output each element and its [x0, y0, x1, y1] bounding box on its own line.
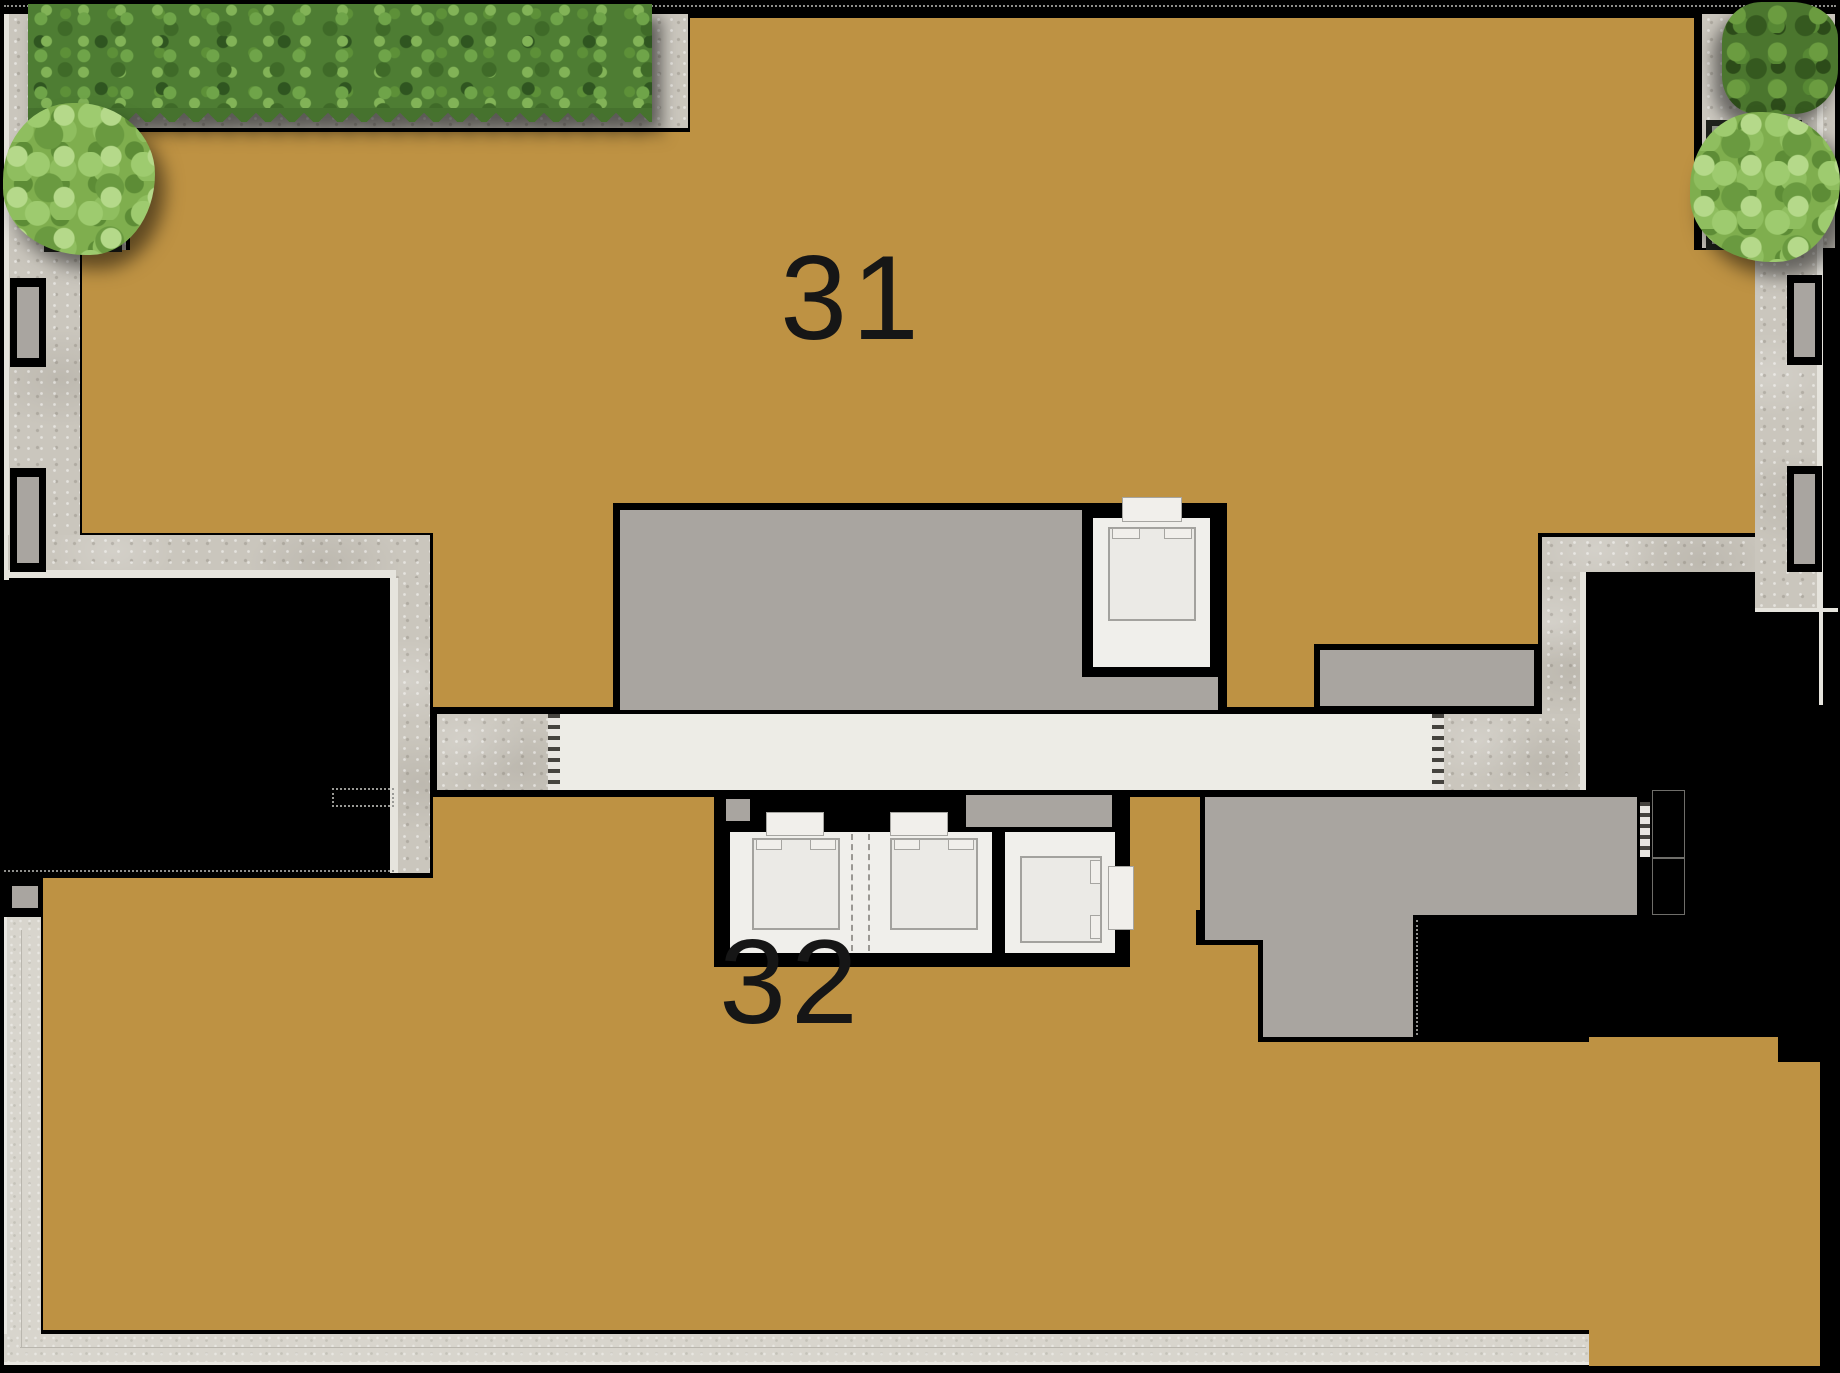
- terrace-railing-strip-west: [390, 578, 398, 873]
- corridor: [559, 714, 1433, 790]
- facade-panel: [17, 287, 39, 358]
- terrace-railing-inner-east: [1580, 572, 1586, 790]
- railing-line-east-lower-v: [1819, 612, 1823, 705]
- corridor-east-landing: [1443, 714, 1580, 790]
- railing-line-east-lower-h: [1755, 608, 1838, 612]
- elevator-door-north: [1122, 497, 1182, 522]
- corridor-door-west: [548, 714, 560, 790]
- service-core: [620, 510, 1082, 710]
- terrace-east-return: [1542, 537, 1755, 572]
- unit-32-label: 32: [691, 922, 891, 1052]
- elevator-door-side: [1108, 866, 1134, 930]
- utility-box: [1320, 650, 1534, 706]
- terrace-east-strip-down: [1542, 572, 1580, 714]
- balcony-joint-line: [20, 1347, 1586, 1348]
- stairwell-stem: [1263, 915, 1413, 1037]
- elevator-cab-side: [1020, 856, 1102, 943]
- hedge-container: [28, 4, 652, 122]
- stair-lobby-outline: [1652, 790, 1685, 859]
- void-dotted-step: [332, 788, 394, 807]
- facade-panel: [1794, 283, 1815, 357]
- tree-icon: [3, 103, 155, 255]
- elevator-cab-middle: [890, 838, 978, 930]
- balcony-panel: [12, 886, 38, 908]
- tree-icon: [1690, 112, 1840, 262]
- terrace-railing-southwest: [8, 570, 396, 578]
- corridor-door-east: [1432, 714, 1444, 790]
- facade-panel: [17, 477, 39, 563]
- floor-plan-canvas: 31 32: [0, 0, 1840, 1373]
- balcony-west: [4, 917, 41, 1362]
- bank-duct: [726, 799, 750, 821]
- elevator-door-middle: [890, 812, 948, 836]
- stair-door-east: [1640, 802, 1650, 857]
- balcony-south: [4, 1334, 1589, 1365]
- stairwell-left-step: [1205, 915, 1263, 940]
- void-dotted-boundary: [4, 870, 394, 872]
- corridor-west-landing: [437, 714, 549, 790]
- service-core-ledge: [1082, 677, 1218, 710]
- elevator-cab-north: [1108, 527, 1196, 621]
- shrub-icon: [1722, 2, 1838, 114]
- bank-service-slab: [966, 795, 1112, 827]
- terrace-strip-to-corridor: [398, 578, 430, 873]
- hedge-icon: [28, 4, 652, 108]
- facade-panel: [1794, 474, 1815, 564]
- elevator-door-left: [766, 812, 824, 836]
- balcony-joint-line-v: [21, 930, 22, 1347]
- stair-lobby-outline: [1652, 857, 1685, 915]
- stairwell: [1205, 797, 1637, 915]
- void-dotted-line: [1416, 920, 1418, 1035]
- unit-31-label: 31: [752, 238, 952, 368]
